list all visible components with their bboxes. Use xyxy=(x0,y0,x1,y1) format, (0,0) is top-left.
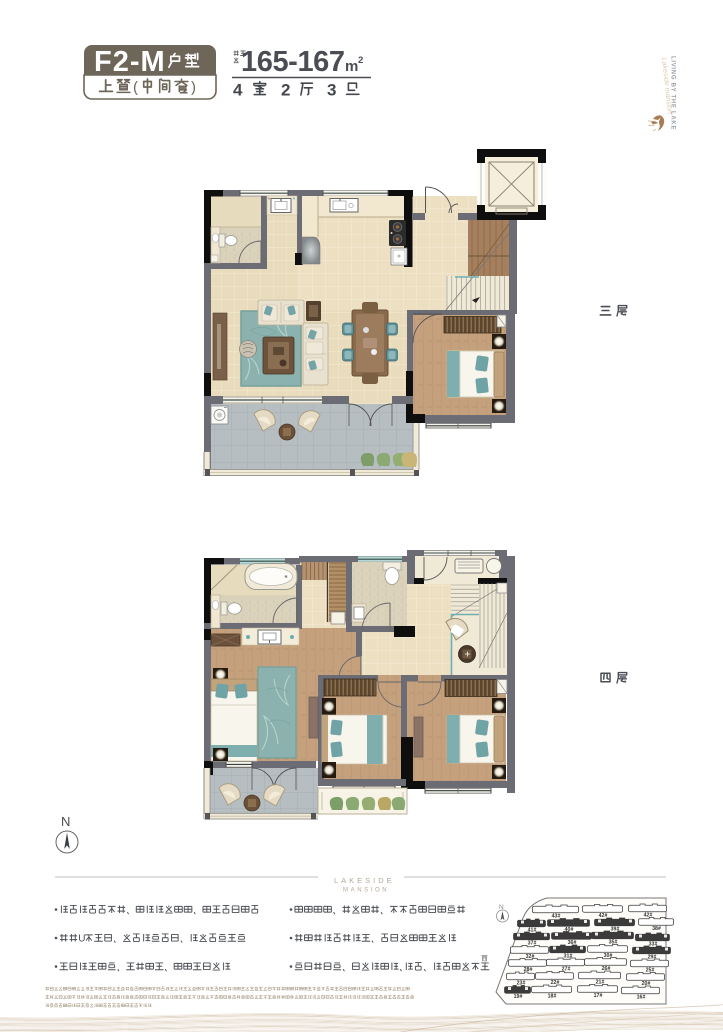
svg-text:m: m xyxy=(345,58,358,75)
svg-text:3: 3 xyxy=(327,81,336,100)
svg-text:43#: 43# xyxy=(552,914,561,920)
svg-text:18#: 18# xyxy=(548,994,557,1000)
svg-text:MANSION: MANSION xyxy=(343,888,389,894)
svg-text:165-167: 165-167 xyxy=(241,46,345,78)
svg-text:LAKESIDE: LAKESIDE xyxy=(334,876,395,885)
svg-text:U: U xyxy=(78,933,85,944)
svg-text:F2-M: F2-M xyxy=(94,46,166,78)
svg-text:N: N xyxy=(61,814,70,829)
svg-text:2: 2 xyxy=(281,81,290,100)
svg-text:19#: 19# xyxy=(514,994,523,1000)
svg-text:17#: 17# xyxy=(594,993,603,999)
svg-text:16#: 16# xyxy=(637,995,646,1001)
svg-text:38#: 38# xyxy=(652,926,661,932)
svg-text:2: 2 xyxy=(358,55,363,66)
svg-text:(: ( xyxy=(133,79,138,96)
svg-text:4: 4 xyxy=(233,81,243,100)
svg-text:): ) xyxy=(191,79,196,96)
